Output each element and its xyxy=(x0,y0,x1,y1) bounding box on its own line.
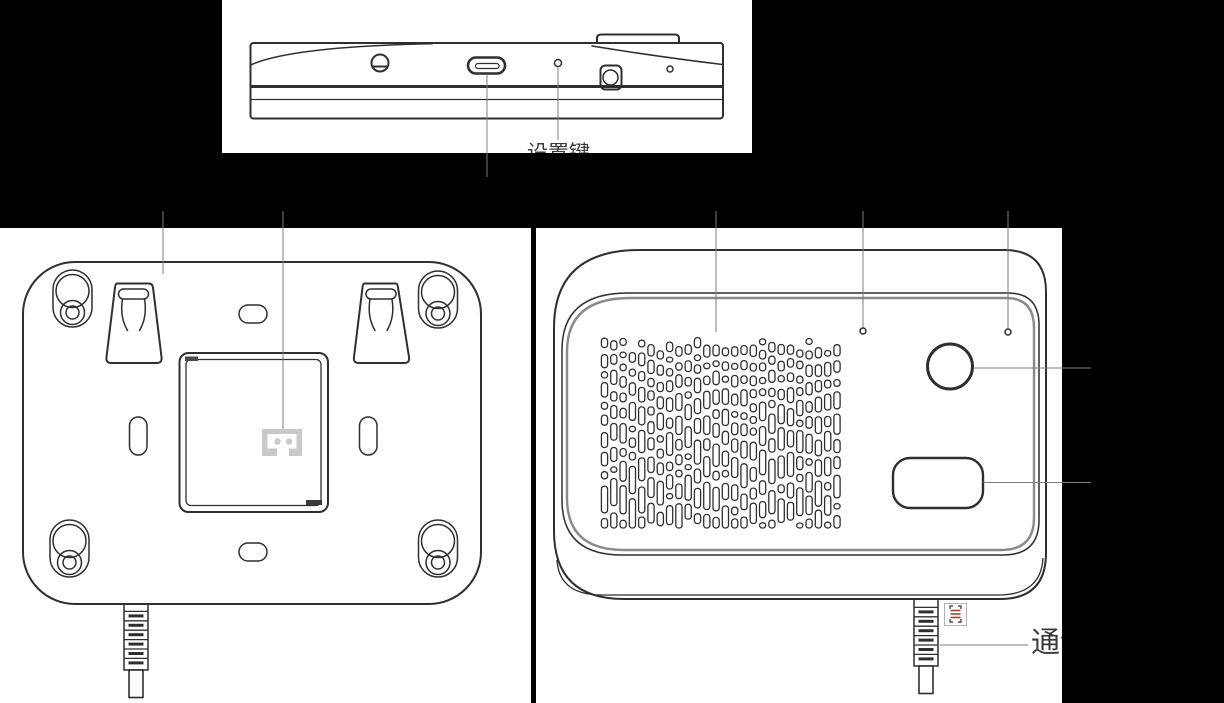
slots xyxy=(130,305,378,561)
communication-label: 通讯 xyxy=(1031,629,1062,658)
top-view-panel: 设置键 xyxy=(222,0,752,153)
bezel-inner xyxy=(567,298,1034,550)
back-view-panel xyxy=(0,228,531,703)
sensor-pinhole xyxy=(1005,329,1011,335)
bracket-recess xyxy=(180,353,329,512)
front-view-drawing xyxy=(536,228,1062,703)
front-shell-outline xyxy=(554,250,1046,599)
front-view-panel: 通讯 xyxy=(536,228,1062,703)
front-view-callout-lines xyxy=(716,228,1062,645)
slot-bottom-center xyxy=(239,543,267,561)
scan-window xyxy=(893,458,983,508)
slot-left xyxy=(130,417,148,455)
recess-notch-mark xyxy=(185,357,198,362)
recess-dark-mark xyxy=(306,500,322,505)
slot-top-center xyxy=(239,305,267,323)
mount-hook-right xyxy=(354,284,409,364)
power-cable-front xyxy=(914,600,938,694)
settings-key-label: 设置键 xyxy=(527,143,590,153)
indicator-pinhole xyxy=(860,328,866,334)
front-shell-seam xyxy=(557,558,1043,595)
power-cable-back xyxy=(124,604,148,698)
chamfer-left xyxy=(251,44,433,65)
back-view-drawing xyxy=(0,228,531,703)
chamfer-right xyxy=(592,46,723,65)
doorbell-button xyxy=(928,344,973,389)
mount-hook-left xyxy=(106,284,161,364)
speaker-grille xyxy=(601,338,840,528)
scan-icon xyxy=(945,604,967,626)
jack-hole xyxy=(372,55,389,72)
mic-pinhole xyxy=(667,66,673,72)
settings-pinhole xyxy=(555,60,562,67)
back-view-callout-lines xyxy=(163,228,283,429)
usb-c-port xyxy=(468,58,505,74)
manual-figure-page: { "window": { "background": "#000000" },… xyxy=(0,0,1224,703)
top-bump xyxy=(597,35,679,44)
top-view-drawing xyxy=(222,0,752,153)
slot-right xyxy=(360,417,378,455)
power-connector xyxy=(262,429,302,456)
